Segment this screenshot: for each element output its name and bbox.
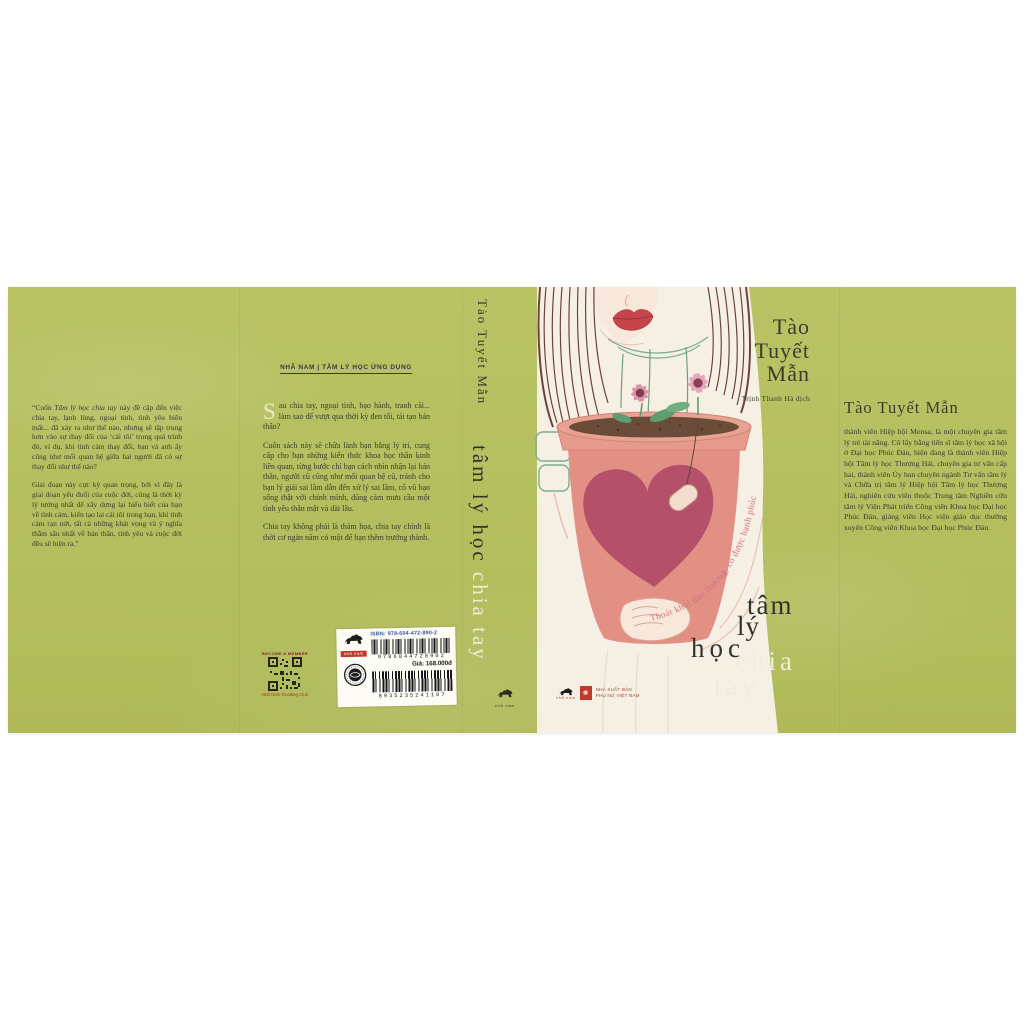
spine-title-accent: chia tay (468, 572, 492, 662)
isbn-text: ISBN: 978-604-472-890-2 (370, 630, 452, 638)
flap-description: Sau chia tay, ngoại tình, bạo hành, tran… (263, 401, 430, 552)
author-bio-text: thành viên Hiệp hội Mensa, là một chuyên… (844, 427, 1007, 534)
nhanam-horse-icon (558, 687, 574, 696)
women-publisher-seal-icon: ❀ (580, 686, 592, 700)
flap-paragraph-3: Chia tay không phải là thảm họa, chia ta… (263, 522, 430, 543)
membership-qr-block: BECOME A MEMBER Nhã Nam Reading Club (256, 651, 314, 697)
product-barcode-number: 8935235241107 (373, 692, 453, 700)
nhanam-logo-label: nhã nam (556, 696, 576, 700)
price-text: Giá: 168.000đ (372, 660, 452, 669)
qr-code (268, 657, 302, 691)
fold-line-right (839, 287, 841, 733)
back-cover-quote: “Cuốn Tâm lý học chia tay này đề cập đến… (32, 403, 182, 558)
front-publisher-row: nhã nam ❀ NHÀ XUẤT BẢN PHỤ NỮ VIỆT NAM (556, 686, 640, 700)
imprint-header: NHÃ NAM | TÂM LÝ HỌC ỨNG DỤNG (261, 356, 431, 374)
flap-paragraph-1: Sau chia tay, ngoại tình, bạo hành, tran… (263, 401, 430, 433)
translator-credit: Trịnh Thanh Hà dịch (698, 394, 810, 403)
spine-author: Tào Tuyết Mẫn (474, 299, 490, 405)
nhanam-logo: nhã nam (340, 632, 367, 658)
spine-logo-label: nhã nam (488, 704, 522, 708)
title-word-tay: tay (714, 671, 759, 702)
fold-line-spine-left (462, 287, 464, 733)
dropcap-s: S (263, 402, 276, 422)
jacket-spread: Thoát khỏi đau thương, có được hạnh phúc… (8, 287, 1016, 733)
ean-barcode (371, 638, 451, 655)
flap-paragraph-2: Cuốn sách này sẽ chữa lành bạn bằng lý t… (263, 441, 430, 515)
spine-title-main: tâm lý học (468, 445, 492, 572)
front-author-name: Tào Tuyết Mẫn (698, 315, 810, 386)
quote-paragraph-2: Giai đoạn này cực kỳ quan trọng, bởi vì … (32, 480, 182, 548)
quote-paragraph-1: “Cuốn Tâm lý học chia tay này đề cập đến… (32, 403, 182, 471)
fold-line-left (239, 287, 241, 733)
quote-open: “Cuốn (32, 403, 54, 412)
quote-rest: này đề cập đến việc chia tay, lạnh lùng,… (32, 403, 182, 471)
quote-book-title: Tâm lý học chia tay (54, 403, 117, 412)
barcode-label: nhã nam ISBN: 978-604-472-890-2 97860447… (336, 627, 457, 707)
spine-publisher-logo: nhã nam (488, 685, 522, 708)
qr-caption-top: BECOME A MEMBER (256, 651, 314, 656)
nhanam-logo-label: nhã nam (341, 651, 367, 658)
publisher-line-2: PHỤ NỮ VIỆT NAM (596, 693, 640, 699)
nhanam-logo: nhã nam (556, 687, 576, 700)
imprint-header-label: NHÃ NAM | TÂM LÝ HỌC ỨNG DỤNG (280, 364, 412, 374)
nhanam-horse-icon (342, 633, 364, 645)
author-line-1: Tào (698, 315, 810, 339)
qr-caption-bottom: Nhã Nam Reading Club (256, 692, 314, 697)
author-bio-heading: Tào Tuyết Mẫn (844, 398, 959, 418)
author-line-2: Tuyết (698, 339, 810, 363)
spine-title: tâm lý học chia tay (467, 445, 492, 662)
nhanam-horse-icon (496, 688, 514, 698)
flap-p1-text: au chia tay, ngoại tình, bạo hành, tranh… (263, 401, 430, 431)
author-line-3: Mẫn (698, 362, 810, 386)
member-stamp-icon (343, 663, 368, 692)
book-jacket-scan: Thoát khỏi đau thương, có được hạnh phúc… (0, 0, 1024, 1024)
publisher-name: NHÀ XUẤT BẢN PHỤ NỮ VIỆT NAM (596, 687, 640, 698)
product-barcode (372, 670, 452, 693)
